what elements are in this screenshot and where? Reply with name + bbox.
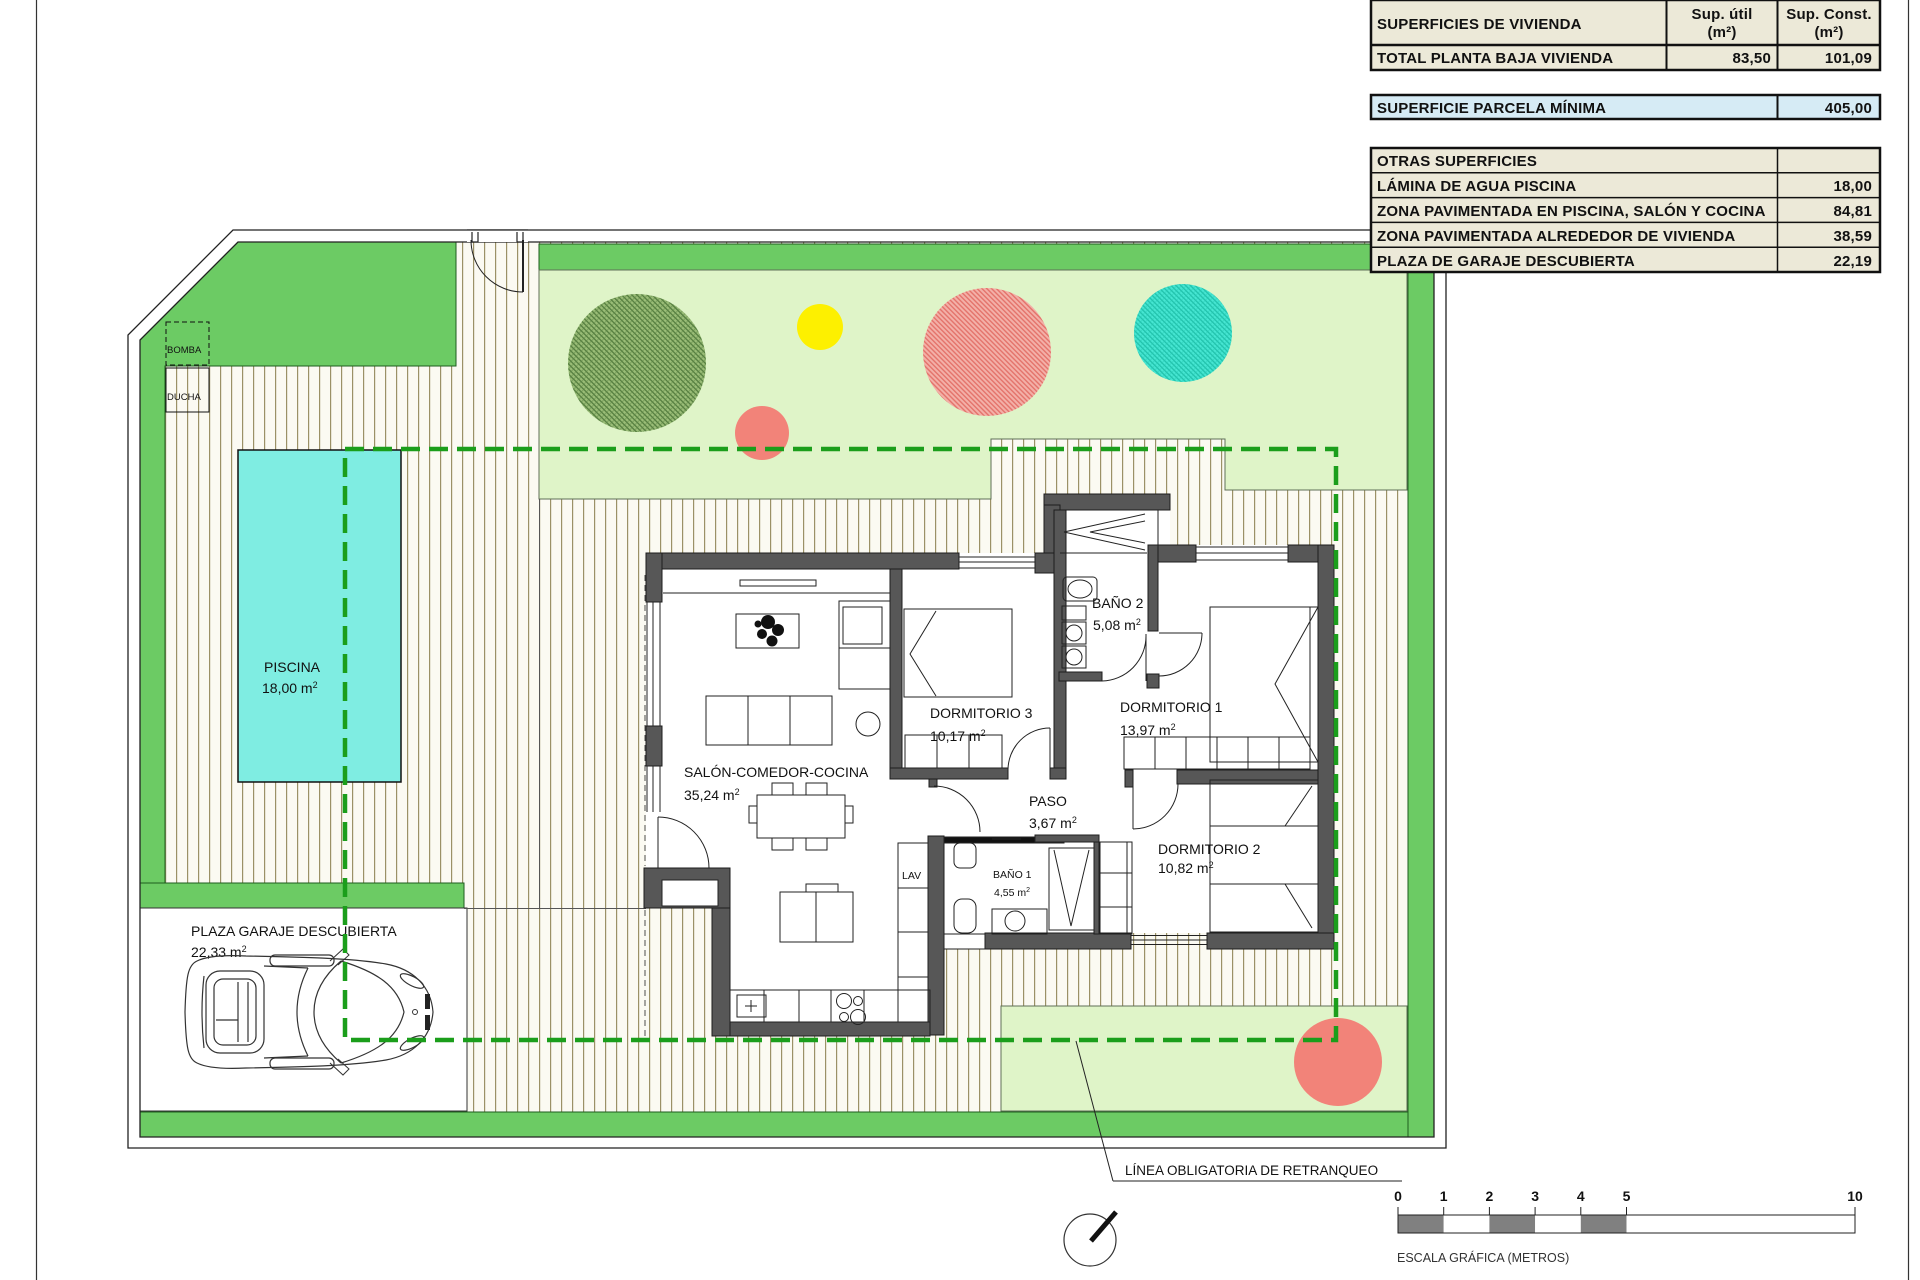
svg-text:5,08 m2: 5,08 m2 <box>1093 617 1141 633</box>
svg-text:LÍNEA OBLIGATORIA DE RETRANQUE: LÍNEA OBLIGATORIA DE RETRANQUEO <box>1125 1163 1378 1178</box>
svg-text:4,55 m2: 4,55 m2 <box>994 887 1030 899</box>
svg-text:(m²): (m²) <box>1707 24 1736 41</box>
svg-text:18,00: 18,00 <box>1833 178 1872 195</box>
svg-text:Sup. útil: Sup. útil <box>1692 6 1753 23</box>
svg-text:38,59: 38,59 <box>1833 228 1872 245</box>
svg-text:35,24 m2: 35,24 m2 <box>684 787 740 803</box>
svg-text:10: 10 <box>1847 1188 1863 1204</box>
svg-text:ESCALA GRÁFICA (METROS): ESCALA GRÁFICA (METROS) <box>1397 1250 1569 1265</box>
svg-text:13,97 m2: 13,97 m2 <box>1120 722 1176 738</box>
svg-text:22,33 m2: 22,33 m2 <box>191 944 247 960</box>
svg-text:BAÑO 2: BAÑO 2 <box>1092 595 1144 611</box>
svg-text:2: 2 <box>1486 1188 1494 1204</box>
svg-text:4: 4 <box>1577 1188 1585 1204</box>
svg-text:PLAZA GARAJE DESCUBIERTA: PLAZA GARAJE DESCUBIERTA <box>191 923 397 939</box>
svg-text:DORMITORIO 2: DORMITORIO 2 <box>1158 841 1261 857</box>
svg-text:PASO: PASO <box>1029 793 1067 809</box>
svg-text:LÁMINA DE AGUA PISCINA: LÁMINA DE AGUA PISCINA <box>1377 178 1576 195</box>
svg-text:84,81: 84,81 <box>1833 203 1872 220</box>
svg-text:22,19: 22,19 <box>1833 253 1872 270</box>
svg-text:3: 3 <box>1531 1188 1539 1204</box>
svg-text:DUCHA: DUCHA <box>167 392 201 403</box>
svg-text:5: 5 <box>1623 1188 1631 1204</box>
svg-text:DORMITORIO 3: DORMITORIO 3 <box>930 705 1033 721</box>
svg-text:LAV: LAV <box>902 870 921 882</box>
svg-text:1: 1 <box>1440 1188 1448 1204</box>
svg-text:BAÑO 1: BAÑO 1 <box>993 868 1032 881</box>
svg-text:PISCINA: PISCINA <box>264 659 321 675</box>
svg-text:3,67 m2: 3,67 m2 <box>1029 815 1077 831</box>
svg-text:OTRAS SUPERFICIES: OTRAS SUPERFICIES <box>1377 153 1537 170</box>
svg-text:ZONA PAVIMENTADA EN PISCINA, S: ZONA PAVIMENTADA EN PISCINA, SALÓN Y COC… <box>1377 202 1766 220</box>
svg-text:18,00 m2: 18,00 m2 <box>262 680 318 696</box>
svg-text:PLAZA DE GARAJE DESCUBIERTA: PLAZA DE GARAJE DESCUBIERTA <box>1377 253 1635 270</box>
svg-text:405,00: 405,00 <box>1825 100 1872 117</box>
svg-text:0: 0 <box>1394 1188 1402 1204</box>
svg-text:101,09: 101,09 <box>1825 50 1872 67</box>
svg-text:SALÓN-COMEDOR-COCINA: SALÓN-COMEDOR-COCINA <box>684 764 869 780</box>
svg-text:TOTAL PLANTA BAJA VIVIENDA: TOTAL PLANTA BAJA VIVIENDA <box>1377 50 1613 67</box>
svg-text:SUPERFICIES DE VIVIENDA: SUPERFICIES DE VIVIENDA <box>1377 16 1582 33</box>
svg-text:83,50: 83,50 <box>1732 50 1771 67</box>
svg-text:ZONA PAVIMENTADA ALREDEDOR DE: ZONA PAVIMENTADA ALREDEDOR DE VIVIENDA <box>1377 228 1735 245</box>
svg-text:10,17 m2: 10,17 m2 <box>930 728 986 744</box>
svg-text:10,82 m2: 10,82 m2 <box>1158 860 1214 876</box>
svg-text:DORMITORIO 1: DORMITORIO 1 <box>1120 699 1223 715</box>
svg-text:Sup. Const.: Sup. Const. <box>1786 6 1872 23</box>
svg-text:SUPERFICIE PARCELA MÍNIMA: SUPERFICIE PARCELA MÍNIMA <box>1377 100 1606 117</box>
svg-text:(m²): (m²) <box>1814 24 1843 41</box>
svg-text:BOMBA: BOMBA <box>167 345 202 356</box>
